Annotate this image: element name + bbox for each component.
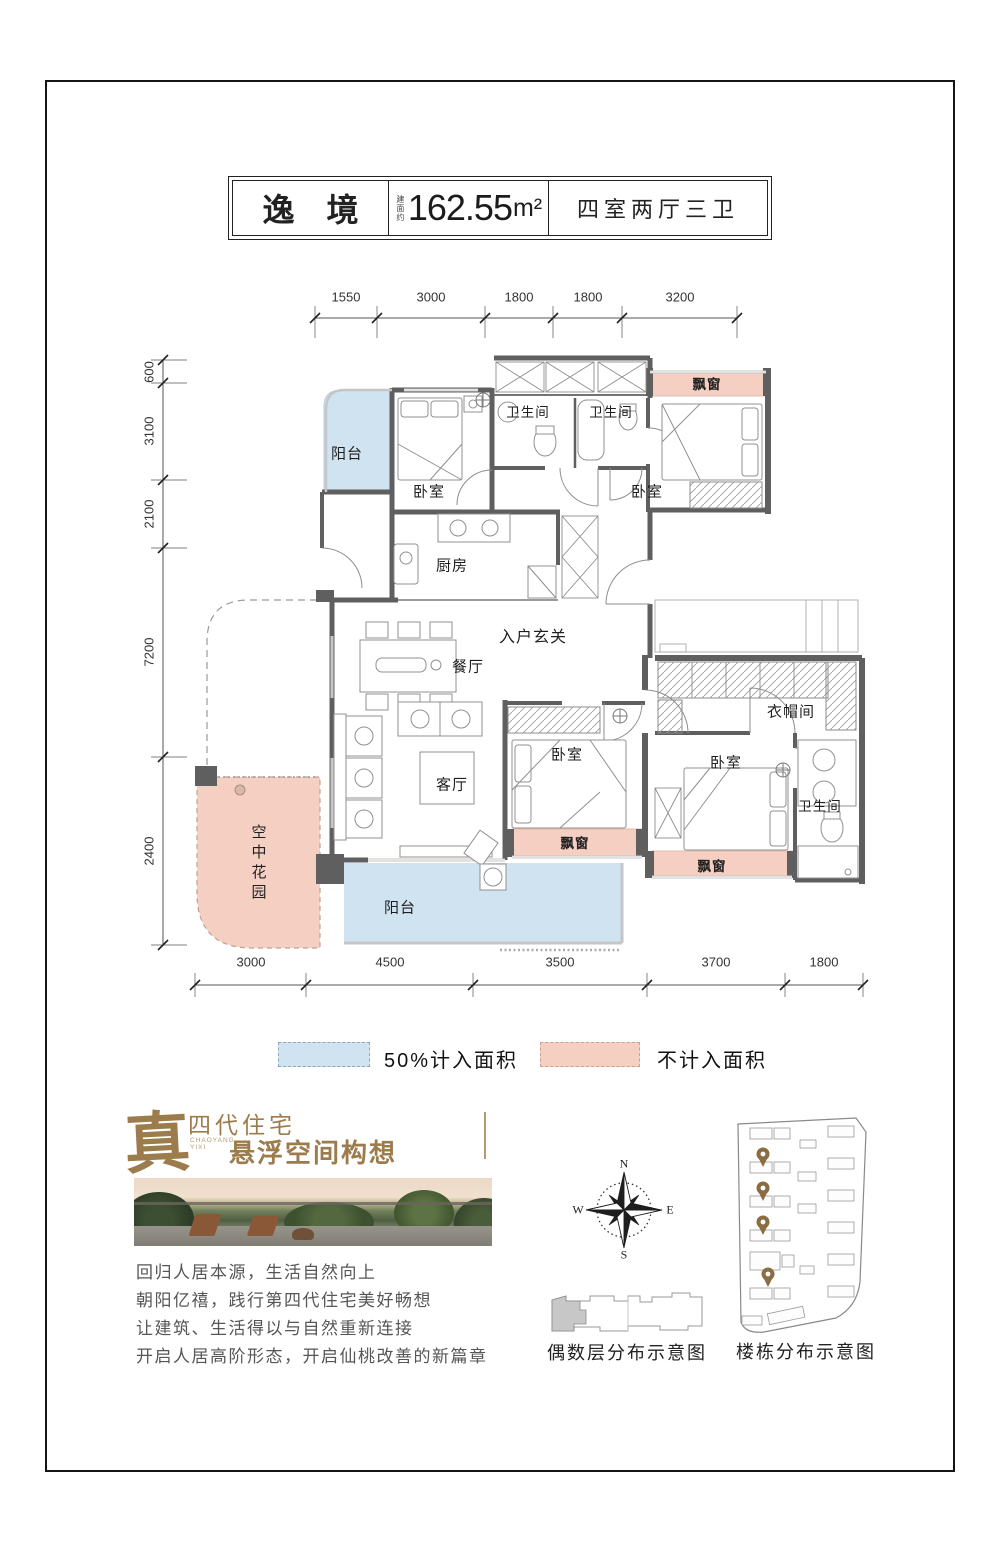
intro-line-1: 回归人居本源，生活自然向上 — [136, 1259, 536, 1287]
floor-diagram-caption: 偶数层分布示意图 — [547, 1339, 707, 1365]
dim-top-5: 3200 — [666, 290, 695, 305]
dim-top-2: 3000 — [417, 290, 446, 305]
compass-w: W — [572, 1203, 583, 1218]
room-foyer: 入户玄关 — [499, 623, 567, 647]
room-sky-garden: 空中花园 — [248, 824, 269, 904]
area-prefix: 建面约 — [395, 195, 405, 222]
room-bedroom-2: 卧室 — [631, 481, 663, 502]
dim-left-5: 2400 — [142, 837, 157, 866]
dim-left-1: 600 — [142, 361, 157, 383]
dim-left-3: 2100 — [142, 500, 157, 529]
site-plan-diagram — [738, 1118, 866, 1332]
compass-e: E — [666, 1203, 673, 1218]
dim-top-3: 1800 — [505, 290, 534, 305]
intro-line-3: 让建筑、生活得以与自然重新连接 — [136, 1315, 536, 1343]
room-bay-top: 飘窗 — [693, 373, 722, 393]
area-value: 162.55 — [408, 187, 512, 229]
brand-seal: 真 — [122, 1088, 193, 1187]
entry-landing — [655, 600, 858, 652]
legend-label-excluded: 不计入面积 — [657, 1044, 767, 1073]
dim-bottom-4: 3700 — [702, 955, 731, 970]
dim-top-4: 1800 — [574, 290, 603, 305]
photo-table — [292, 1228, 314, 1240]
room-bedroom-3: 卧室 — [551, 744, 583, 765]
brand-en-1: CHAOYANG — [190, 1137, 235, 1144]
room-bay-4: 飘窗 — [698, 855, 727, 875]
dim-left-2: 3100 — [142, 417, 157, 446]
compass-s: S — [621, 1248, 628, 1263]
intro-line-2: 朝阳亿禧，践行第四代住宅美好畅想 — [136, 1287, 536, 1315]
area-unit: m² — [513, 194, 542, 223]
room-balcony-top: 阳台 — [331, 443, 363, 464]
room-dining: 餐厅 — [452, 656, 484, 677]
dim-bottom-2: 4500 — [376, 955, 405, 970]
room-bay-3: 飘窗 — [561, 832, 590, 852]
plan-title: 逸 境 — [233, 181, 389, 235]
room-kitchen: 厨房 — [436, 555, 468, 576]
intro-line-4: 开启人居高阶形态，开启仙桃改善的新篇章 — [136, 1343, 536, 1371]
dim-left-4: 7200 — [142, 638, 157, 667]
zone-balcony-top — [324, 390, 392, 492]
floor-distribution-diagram — [552, 1293, 702, 1331]
room-bedroom-1: 卧室 — [413, 481, 445, 502]
room-bath-1: 卫生间 — [506, 401, 550, 421]
brand-en: CHAOYANG YIXI — [190, 1137, 235, 1151]
room-bath-3: 卫生间 — [798, 795, 842, 815]
brand-line2: 悬浮空间构想 — [229, 1133, 397, 1170]
room-balcony-bottom: 阳台 — [384, 897, 416, 918]
legend-label-half-area: 50%计入面积 — [384, 1044, 518, 1073]
brand-divider — [484, 1112, 486, 1159]
title-bar: 逸 境 建面约 162.55 m² 四室两厅三卫 — [228, 176, 772, 240]
intro-paragraph: 回归人居本源，生活自然向上 朝阳亿禧，践行第四代住宅美好畅想 让建筑、生活得以与… — [136, 1259, 536, 1371]
area-cell: 建面约 162.55 m² — [389, 181, 549, 235]
dim-bottom-3: 3500 — [546, 955, 575, 970]
void-dashed-outline — [207, 600, 330, 777]
brand-en-2: YIXI — [190, 1144, 235, 1151]
room-living: 客厅 — [436, 774, 468, 795]
legend-swatch-pink — [540, 1042, 640, 1067]
legend-swatch-blue — [278, 1042, 370, 1067]
room-bath-2: 卫生间 — [589, 401, 633, 421]
site-diagram-caption: 楼栋分布示意图 — [736, 1338, 876, 1364]
garden-photo — [134, 1178, 492, 1246]
dim-bottom-5: 1800 — [810, 955, 839, 970]
room-bedroom-4: 卧室 — [710, 752, 742, 773]
compass-n: N — [620, 1157, 629, 1172]
photo-railing — [134, 1202, 492, 1205]
dim-top-1: 1550 — [332, 290, 361, 305]
plan-spec: 四室两厅三卫 — [549, 181, 767, 235]
room-cloakroom: 衣帽间 — [767, 701, 815, 722]
dim-bottom-1: 3000 — [237, 955, 266, 970]
compass-rose — [586, 1172, 662, 1248]
flyer-page: 逸 境 建面约 162.55 m² 四室两厅三卫 1550 3000 1800 … — [0, 0, 1000, 1551]
